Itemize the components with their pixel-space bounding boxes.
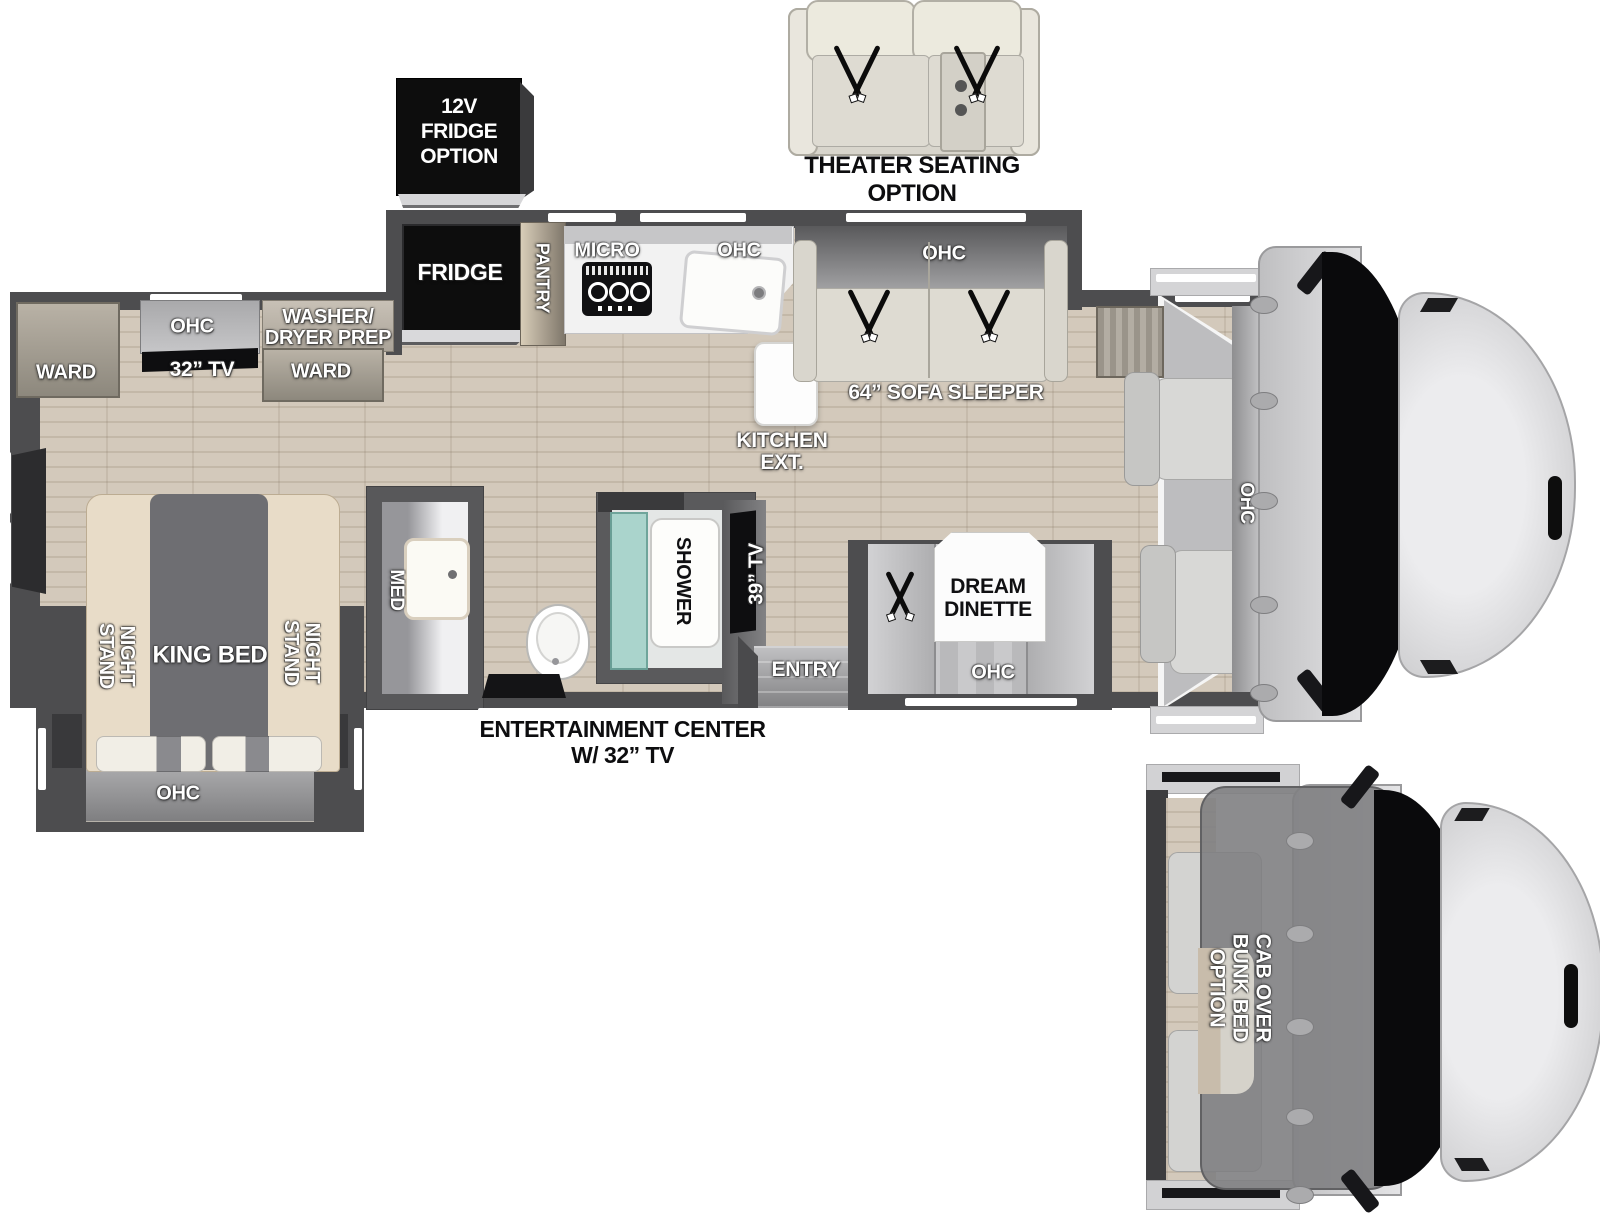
window — [38, 728, 46, 790]
washer-dryer-prep-label: WASHER/ DRYER PREP — [265, 307, 391, 349]
burner-icon — [630, 282, 650, 302]
caption-line: OPTION — [397, 145, 521, 170]
dinette-label: DREAM DINETTE — [944, 575, 1032, 621]
toilet-flush-icon — [552, 658, 559, 665]
window — [640, 213, 746, 222]
recline-strap-icon — [828, 46, 886, 116]
med-label: MED — [386, 569, 406, 610]
night-stand-label-left: NIGHT STAND — [95, 623, 137, 689]
rear-wall-tv — [12, 448, 46, 594]
passenger-seat-back — [1124, 372, 1160, 486]
label-line: NIGHT — [116, 623, 137, 689]
theater-seating-illustration — [788, 0, 1036, 152]
cooktop-grate — [586, 266, 648, 275]
entertainment-center-cabinet — [482, 674, 566, 698]
wardrobe-left-label: WARD — [36, 363, 96, 384]
faucet-icon — [752, 286, 766, 300]
caption-line: 12V — [397, 95, 521, 120]
recline-strap-icon — [948, 46, 1006, 116]
cab-cabinet — [1096, 306, 1164, 378]
roof-cap-top — [1150, 268, 1264, 296]
bath-sink-icon — [404, 538, 470, 620]
exterior-door-strip — [478, 708, 568, 716]
hinge-pill — [1286, 1186, 1314, 1204]
clearance-strip — [1156, 716, 1256, 724]
king-bed-label: KING BED — [153, 642, 268, 667]
label-line: OPTION — [1205, 934, 1228, 1042]
grille-slot-2 — [1564, 964, 1578, 1028]
toilet-seat — [536, 612, 580, 664]
label-line: NIGHT — [301, 620, 322, 686]
fridge-edge — [402, 330, 532, 345]
12v-fridge-option-label: 12V FRIDGE OPTION — [397, 95, 521, 169]
sofa-split-line — [928, 242, 930, 378]
window — [2, 522, 11, 584]
hinge-pill — [1286, 832, 1314, 850]
label-line: STAND — [280, 620, 301, 686]
recline-strap-icon — [842, 290, 896, 354]
recline-strap-icon — [880, 572, 920, 632]
tv-32-label: 32” TV — [170, 359, 235, 381]
caption-line: W/ 32” TV — [470, 742, 775, 768]
bed-pillow — [212, 736, 322, 772]
tv-39-label: 39” TV — [747, 543, 768, 605]
dinette-ohc-label: OHC — [971, 663, 1015, 684]
sofa-sleeper-label: 64” SOFA SLEEPER — [848, 382, 1043, 404]
micro-label: MICRO — [574, 241, 639, 262]
label-line: EXT. — [736, 452, 827, 474]
entry-label: ENTRY — [772, 659, 841, 681]
hinge-pill — [1286, 925, 1314, 943]
kitchen-ext-label: KITCHEN EXT. — [736, 430, 827, 474]
recline-strap-icon — [962, 290, 1016, 354]
theater-seating-caption: THEATER SEATING OPTION — [782, 152, 1042, 207]
bunk-roof-strip — [1162, 772, 1280, 782]
caption-line: OPTION — [782, 180, 1042, 208]
hinge-pill — [1250, 596, 1278, 614]
caption-line: ENTERTAINMENT CENTER — [470, 716, 775, 742]
slideout-wall-panel — [52, 714, 82, 768]
sofa-armrest-right — [1044, 240, 1068, 382]
shower-label: SHOWER — [672, 537, 694, 625]
fridge-label: FRIDGE — [417, 260, 502, 284]
burner-icon — [609, 282, 629, 302]
window — [354, 728, 362, 790]
window — [846, 213, 1026, 222]
night-stand-label-right: NIGHT STAND — [280, 620, 322, 686]
hinge-pill — [1286, 1018, 1314, 1036]
cooktop-icon — [582, 262, 652, 316]
passenger-seat — [1154, 378, 1242, 480]
kitchen-slide-right-wall — [1066, 210, 1082, 310]
12v-fridge-option-box: 12V FRIDGE OPTION — [396, 78, 522, 196]
label-line: DRYER PREP — [265, 328, 391, 349]
king-bed-blanket — [150, 494, 268, 770]
wardrobe-left — [16, 302, 120, 398]
faucet-icon — [448, 570, 457, 579]
hinge-pill — [1250, 492, 1278, 510]
burner-icon — [588, 282, 608, 302]
rv-floorplan-diagram: THEATER SEATING OPTION 12V FRIDGE OPTION… — [0, 0, 1600, 1216]
kitchen-sink-icon — [679, 250, 787, 337]
window — [2, 452, 11, 514]
12v-box-edge-bottom — [398, 194, 526, 208]
shower-lintel — [598, 492, 684, 512]
caption-line: THEATER SEATING — [782, 152, 1042, 180]
label-line: CAB OVER — [1252, 934, 1275, 1042]
label-line: DINETTE — [944, 598, 1032, 621]
bunk-rear-wall — [1146, 790, 1168, 1190]
cooktop-knobs — [598, 306, 636, 311]
cab-over-bunk-label: CAB OVER BUNK BED OPTION — [1205, 934, 1274, 1042]
label-line: STAND — [95, 623, 116, 689]
caption-line: FRIDGE — [397, 120, 521, 145]
bed-slideout-ohc-label: OHC — [156, 784, 200, 805]
window — [548, 213, 616, 222]
hinge-pill — [1250, 296, 1278, 314]
hinge-pill — [1250, 392, 1278, 410]
label-line: BUNK BED — [1228, 934, 1251, 1042]
pantry-label: PANTRY — [533, 243, 552, 313]
clearance-strip — [1156, 274, 1256, 282]
bedroom-ohc-label: OHC — [170, 317, 214, 338]
wardrobe-right-label: WARD — [291, 362, 351, 383]
entertainment-caption: ENTERTAINMENT CENTER W/ 32” TV — [470, 716, 775, 769]
hinge-pill — [1286, 1108, 1314, 1126]
label-line: KITCHEN — [736, 430, 827, 452]
hinge-pill — [1250, 684, 1278, 702]
kitchen-ohc-label: OHC — [717, 241, 761, 262]
driver-seat-back — [1140, 545, 1176, 663]
sofa-armrest-left — [793, 240, 817, 382]
bed-pillow — [96, 736, 206, 772]
window — [905, 698, 1077, 706]
label-line: DREAM — [944, 575, 1032, 598]
shower-glass — [610, 512, 648, 670]
label-line: WASHER/ — [265, 307, 391, 328]
grille-slot — [1548, 476, 1562, 540]
12v-box-edge-right — [520, 82, 534, 200]
